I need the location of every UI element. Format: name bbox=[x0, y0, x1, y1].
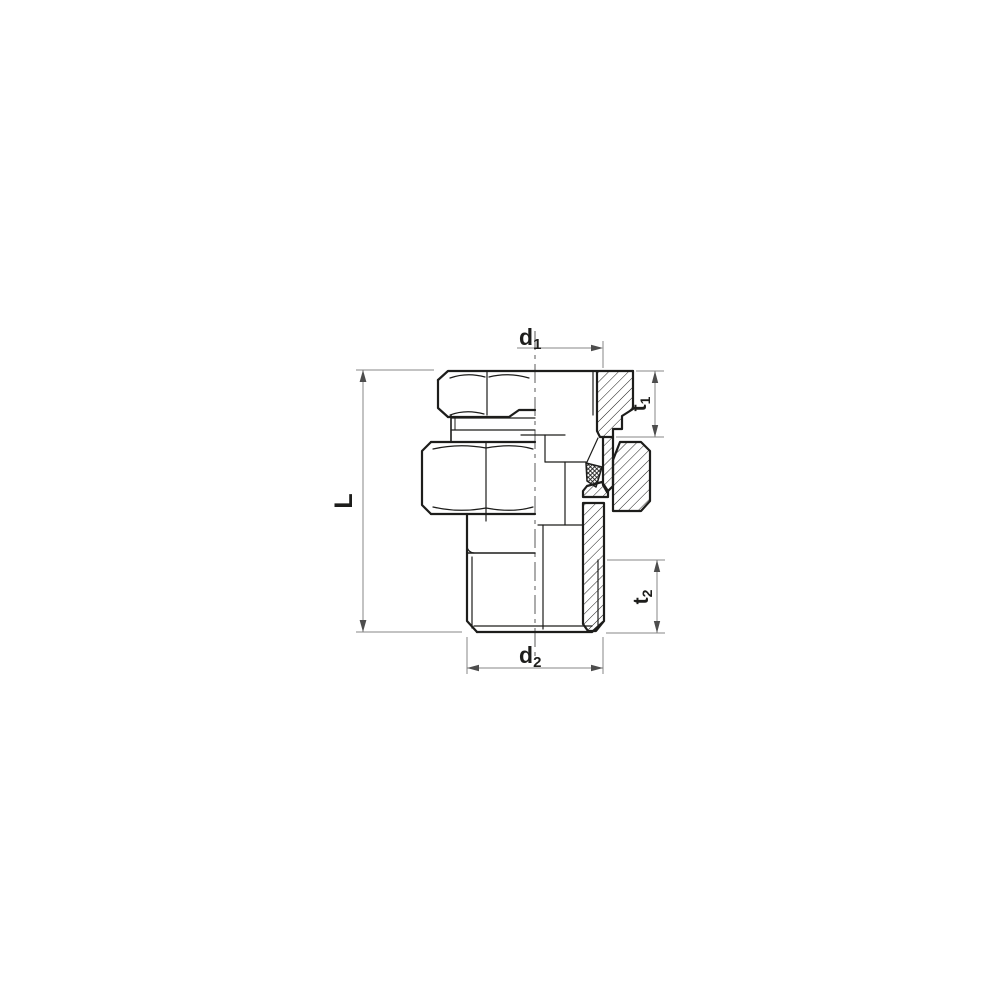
top-hex-nut-bottom-edge bbox=[448, 410, 535, 417]
dimension-label-d2: d2 bbox=[519, 642, 541, 671]
arrow-left bbox=[467, 665, 479, 672]
dimension-label-t2: t2 bbox=[630, 589, 655, 604]
arrow-right bbox=[591, 665, 603, 672]
body-wall-hatch bbox=[583, 503, 604, 631]
union-nut-left-edge bbox=[422, 442, 431, 514]
dimension-label-d1: d1 bbox=[519, 324, 541, 353]
sleeve-section-hatch bbox=[597, 371, 633, 437]
dimension-label-L: L bbox=[330, 493, 358, 508]
sleeve-tail-hatch bbox=[603, 437, 613, 492]
chamfer-arc bbox=[433, 507, 486, 510]
arrow-down bbox=[654, 621, 660, 633]
chamfer-arc bbox=[450, 375, 485, 378]
chamfer-arc bbox=[486, 446, 533, 449]
arrow-up bbox=[360, 370, 367, 382]
chamfer-arc bbox=[486, 507, 533, 510]
drawing-canvas: d1 d2 t1 t2 L bbox=[0, 0, 1000, 1000]
chamfer-arc bbox=[433, 446, 486, 449]
sealing-cone-line bbox=[587, 438, 598, 462]
arrow-right bbox=[591, 345, 603, 352]
chamfer-arc bbox=[450, 412, 484, 415]
arrow-down bbox=[652, 425, 658, 437]
dimension-L bbox=[356, 370, 462, 632]
top-hex-nut-left-edge bbox=[438, 380, 448, 417]
union-nut-section-hatch bbox=[613, 442, 650, 511]
arrow-up bbox=[654, 560, 660, 572]
fitting-technical-drawing: d1 d2 t1 t2 L bbox=[0, 0, 1000, 1000]
arrow-up bbox=[652, 371, 658, 383]
arrow-down bbox=[360, 620, 367, 632]
chamfer-arc bbox=[489, 375, 529, 378]
